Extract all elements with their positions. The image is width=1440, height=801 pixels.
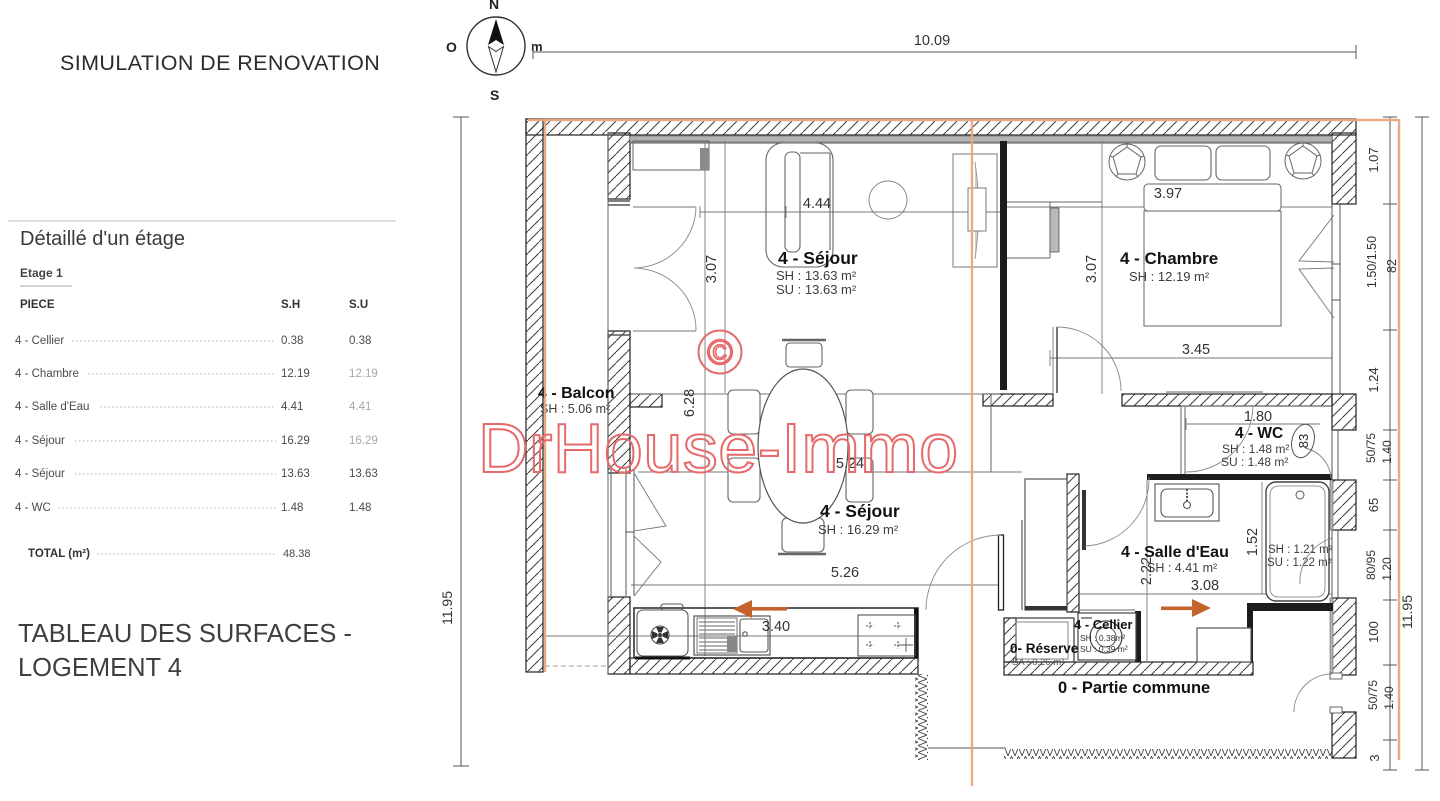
- svg-text:©: ©: [707, 333, 733, 372]
- svg-text:3.07: 3.07: [704, 255, 720, 283]
- svg-text:2.22: 2.22: [1139, 557, 1155, 585]
- svg-text:SA : 0.26 m²: SA : 0.26 m²: [1012, 657, 1064, 668]
- svg-text:S.H: S.H: [281, 299, 300, 311]
- svg-text:3: 3: [1367, 754, 1382, 761]
- svg-text:12.19: 12.19: [349, 368, 378, 380]
- svg-text:TOTAL (m²): TOTAL (m²): [28, 548, 90, 560]
- svg-text:SU : 13.63 m²: SU : 13.63 m²: [776, 282, 857, 297]
- svg-text:4 - Séjour: 4 - Séjour: [15, 468, 65, 480]
- svg-text:SH : 4.41 m²: SH : 4.41 m²: [1147, 561, 1217, 575]
- svg-text:10.09: 10.09: [914, 33, 950, 49]
- svg-text:82: 82: [1385, 259, 1399, 273]
- svg-text:3.07: 3.07: [1084, 255, 1100, 283]
- svg-text:0- Réserve: 0- Réserve: [1010, 641, 1079, 656]
- svg-text:4.41: 4.41: [281, 401, 303, 413]
- svg-text:SH : 12.19 m²: SH : 12.19 m²: [1129, 269, 1210, 284]
- svg-text:3.40: 3.40: [762, 619, 790, 635]
- svg-text:0.38: 0.38: [281, 335, 303, 347]
- svg-text:4 - Cellier: 4 - Cellier: [1074, 617, 1133, 632]
- svg-text:SH : 13.63 m²: SH : 13.63 m²: [776, 268, 857, 283]
- svg-text:SU : 1.22 m²: SU : 1.22 m²: [1267, 557, 1332, 569]
- svg-text:LOGEMENT 4: LOGEMENT 4: [18, 654, 182, 682]
- svg-text:1.48: 1.48: [349, 502, 371, 514]
- svg-text:SIMULATION DE RENOVATION: SIMULATION DE RENOVATION: [60, 51, 380, 75]
- svg-text:4 - Balcon: 4 - Balcon: [538, 385, 614, 402]
- svg-text:4 - WC: 4 - WC: [1235, 425, 1283, 442]
- svg-text:SH : 0.38m²: SH : 0.38m²: [1080, 633, 1126, 643]
- svg-text:1.50/1.50: 1.50/1.50: [1365, 236, 1379, 288]
- svg-text:TABLEAU DES SURFACES -: TABLEAU DES SURFACES -: [18, 620, 352, 648]
- svg-text:0 - Partie commune: 0 - Partie commune: [1058, 679, 1210, 697]
- svg-text:50/75: 50/75: [1364, 433, 1378, 463]
- svg-text:16.29: 16.29: [281, 435, 310, 447]
- svg-text:1.80: 1.80: [1244, 409, 1272, 425]
- svg-text:80/95: 80/95: [1364, 550, 1378, 580]
- svg-text:4.44: 4.44: [803, 196, 831, 212]
- svg-text:SH : 16.29 m²: SH : 16.29 m²: [818, 522, 899, 537]
- svg-text:S: S: [490, 87, 499, 103]
- svg-text:O: O: [446, 39, 457, 55]
- svg-text:SH : 1.21 m²: SH : 1.21 m²: [1268, 544, 1333, 556]
- svg-text:4 - WC: 4 - WC: [15, 502, 51, 514]
- svg-text:3.08: 3.08: [1191, 578, 1219, 594]
- svg-text:4 - Chambre: 4 - Chambre: [15, 368, 79, 380]
- svg-text:11.95: 11.95: [1399, 595, 1415, 629]
- svg-text:4 - Séjour: 4 - Séjour: [778, 248, 858, 268]
- svg-text:S.U: S.U: [349, 299, 368, 311]
- svg-text:3.97: 3.97: [1154, 186, 1182, 202]
- svg-text:1.48: 1.48: [281, 502, 303, 514]
- svg-text:SU : 0.39 m²: SU : 0.39 m²: [1080, 644, 1128, 654]
- svg-text:83: 83: [1296, 434, 1311, 448]
- svg-text:5.26: 5.26: [831, 565, 859, 581]
- svg-text:1.20: 1.20: [1380, 557, 1394, 581]
- svg-text:11.95: 11.95: [439, 591, 455, 625]
- svg-text:4 - Séjour: 4 - Séjour: [15, 435, 65, 447]
- svg-text:13.63: 13.63: [281, 468, 310, 480]
- svg-text:1.24: 1.24: [1366, 367, 1381, 392]
- svg-text:0.38: 0.38: [349, 335, 371, 347]
- svg-text:4 - Salle d'Eau: 4 - Salle d'Eau: [1121, 544, 1229, 561]
- svg-text:SH : 1.48 m²: SH : 1.48 m²: [1222, 442, 1289, 456]
- svg-text:N: N: [489, 0, 499, 12]
- svg-text:13.63: 13.63: [349, 468, 378, 480]
- svg-text:SU : 1.48 m²: SU : 1.48 m²: [1221, 455, 1288, 469]
- svg-text:65: 65: [1366, 498, 1381, 512]
- svg-text:48.38: 48.38: [283, 548, 311, 560]
- svg-text:100: 100: [1366, 621, 1381, 643]
- svg-text:1.52: 1.52: [1245, 528, 1261, 556]
- svg-text:1.40: 1.40: [1380, 440, 1394, 464]
- svg-text:3.45: 3.45: [1182, 342, 1210, 358]
- svg-text:Etage 1: Etage 1: [20, 266, 63, 280]
- svg-text:PIECE: PIECE: [20, 299, 55, 311]
- svg-text:4.41: 4.41: [349, 401, 371, 413]
- svg-text:DrHouse-Immo: DrHouse-Immo: [478, 409, 959, 487]
- svg-text:50/75: 50/75: [1366, 680, 1380, 710]
- svg-text:1.07: 1.07: [1366, 147, 1381, 172]
- svg-text:4 - Chambre: 4 - Chambre: [1120, 249, 1218, 268]
- svg-text:4 - Salle d'Eau: 4 - Salle d'Eau: [15, 401, 89, 413]
- svg-text:Détaillé d'un étage: Détaillé d'un étage: [20, 228, 185, 250]
- svg-text:16.29: 16.29: [349, 435, 378, 447]
- svg-text:4 - Cellier: 4 - Cellier: [15, 335, 64, 347]
- svg-text:12.19: 12.19: [281, 368, 310, 380]
- svg-text:1.40: 1.40: [1382, 686, 1396, 710]
- svg-text:4 - Séjour: 4 - Séjour: [820, 501, 900, 521]
